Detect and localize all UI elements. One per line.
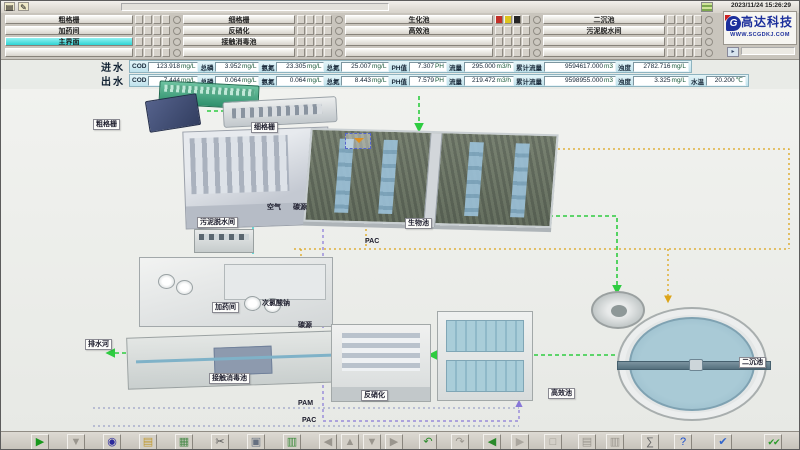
indicator-cell (513, 48, 521, 57)
status-lamp (173, 49, 181, 57)
undo-icon[interactable]: ↶ (419, 434, 437, 450)
menu-button-blank[interactable] (543, 48, 665, 57)
menu-button-生化池[interactable]: 生化池 (345, 15, 493, 24)
field-label: 氨氮 (261, 62, 274, 72)
indicator-cell (667, 37, 675, 46)
alarm-black-button[interactable] (513, 15, 521, 24)
label-pac-a: PAC (365, 237, 379, 246)
indicator-cell (306, 26, 314, 35)
high-efficiency-tank (437, 311, 533, 401)
label-carbon-source-b: 碳源 (298, 321, 312, 330)
higheff-pool (446, 320, 524, 352)
field-unit: mg/L (242, 63, 256, 71)
field-value: 123.918mg/L (148, 62, 198, 72)
status-lamp (533, 16, 541, 24)
field-label: 总氮 (326, 62, 339, 72)
redo-icon[interactable]: ↷ (451, 434, 469, 450)
cascade-icon[interactable]: □ (544, 434, 562, 450)
field-unit: ℃ (736, 77, 743, 85)
label-contact-tank: 接触消毒池 (209, 373, 250, 384)
nav-up-icon[interactable]: ▲ (341, 434, 359, 450)
biological-tank (303, 128, 558, 228)
indicator-cell (144, 48, 152, 57)
field-value: 9594617.000m3 (544, 62, 616, 72)
bio-channel (510, 143, 530, 217)
menu-column: 细格栅反硝化接触消毒池 (183, 15, 295, 57)
field-label: 浊度 (618, 62, 631, 72)
indicator-row (135, 26, 181, 35)
field-unit: mg/L (672, 77, 686, 85)
indicator-row (297, 37, 343, 46)
indicator-row (667, 15, 713, 24)
water-quality-row: 进水COD123.918mg/L总磷3.952mg/L氨氮23.305mg/L总… (101, 60, 799, 73)
field-value: 7.307PH (409, 62, 447, 72)
tile-h-icon[interactable]: ▤ (578, 434, 596, 450)
indicator-cell (135, 15, 143, 24)
indicator-cell (144, 37, 152, 46)
bio-channel (378, 140, 398, 214)
status-lamp (173, 38, 181, 46)
indicator-cell (306, 15, 314, 24)
indicator-cell (522, 48, 530, 57)
status-lamp (335, 38, 343, 46)
field-unit: m3/h (497, 63, 511, 71)
confirm-icon[interactable]: ✔✔ (764, 434, 782, 450)
field-unit: mg/L (307, 77, 321, 85)
status-lamp (705, 38, 713, 46)
field-unit: mg/L (372, 63, 386, 71)
field-label: PH值 (391, 62, 407, 72)
field-label: 氨氮 (261, 76, 274, 86)
menu-button-粗格栅[interactable]: 粗格栅 (5, 15, 133, 24)
label-pam: PAM (298, 399, 313, 408)
indicator-cell (676, 37, 684, 46)
label-high-efficiency: 高效池 (548, 388, 575, 399)
indicator-row (495, 48, 541, 57)
field-unit: mg/L (307, 63, 321, 71)
indicator-cell (306, 48, 314, 57)
indicator-row (297, 26, 343, 35)
scada-window: ▤✎ 粗格栅加药间主界面细格栅反硝化接触消毒池生化池高效池二沉池污泥脱水间 20… (0, 0, 800, 450)
label-fine-screen: 细格栅 (251, 122, 278, 133)
draw-icon[interactable]: ✎ (18, 2, 29, 11)
indicator-cell (162, 48, 170, 57)
image-icon[interactable]: ▦ (175, 434, 193, 450)
indicator-cell (315, 26, 323, 35)
menu-button-加药间[interactable]: 加药间 (5, 26, 133, 35)
field-unit: m3 (604, 77, 613, 85)
bio-center-channel (423, 133, 442, 227)
dosing-tank (244, 296, 261, 311)
indicator-cell (324, 26, 332, 35)
title-field[interactable] (121, 3, 389, 11)
nav-down-icon[interactable]: ▼ (363, 434, 381, 450)
indicator-cell (297, 48, 305, 57)
menu-column: 粗格栅加药间主界面 (5, 15, 133, 57)
indicator-cell (676, 48, 684, 57)
status-lamp (705, 49, 713, 57)
bio-channel (334, 139, 354, 213)
indicator-cell (495, 26, 503, 35)
field-label: 水温 (691, 76, 704, 86)
label-air: 空气 (267, 203, 281, 212)
alarm-status-icon[interactable] (701, 2, 713, 12)
field-value: 9598955.000m3 (544, 76, 616, 86)
paste-icon[interactable]: ▥ (283, 434, 301, 450)
indicator-cell (685, 48, 693, 57)
menu-button-高效池[interactable]: 高效池 (345, 26, 493, 35)
audio-check-icon[interactable]: ✔ (714, 434, 732, 450)
field-value: 3.952mg/L (215, 62, 259, 72)
indicator-cell (504, 37, 512, 46)
menu-bar: 粗格栅加药间主界面细格栅反硝化接触消毒池生化池高效池二沉池污泥脱水间 (1, 13, 800, 60)
indicator-cell (135, 37, 143, 46)
indicator-cell (667, 26, 675, 35)
indicator-cell (522, 37, 530, 46)
indicator-row (495, 37, 541, 46)
field-value: 2782.716mg/L (633, 62, 689, 72)
note-icon[interactable]: ▤ (4, 2, 15, 11)
menu-button-blank[interactable] (543, 37, 665, 46)
field-value: 0.064mg/L (276, 76, 324, 86)
influent-label: 进水 (101, 59, 129, 74)
indicator-row (135, 37, 181, 46)
menu-button-污泥脱水间[interactable]: 污泥脱水间 (543, 26, 665, 35)
label-secondary-clarifier: 二沉池 (739, 357, 766, 368)
indicator-cell (513, 26, 521, 35)
logo-website: WWW.SCGDKJ.COM (724, 32, 796, 38)
alarm-yellow-button[interactable] (504, 15, 512, 24)
logo-company-name: 高达科技 (738, 12, 796, 32)
field-label: 累计流量 (516, 62, 542, 72)
sum-icon[interactable]: ∑ (641, 434, 659, 450)
menu-column: 二沉池污泥脱水间 (543, 15, 665, 57)
field-value: 295.000m3/h (464, 62, 514, 72)
logo-mark-icon: G (726, 16, 741, 31)
dosing-room-building (139, 257, 333, 327)
company-logo: G 高达科技 WWW.SCGDKJ.COM (723, 11, 797, 45)
forward-icon[interactable]: ▶ (511, 434, 529, 450)
indicator-cell (685, 37, 693, 46)
distribution-well (591, 291, 645, 329)
label-pac-b: PAC (302, 416, 316, 425)
indicator-cell (306, 37, 314, 46)
menu-button-细格栅[interactable]: 细格栅 (183, 15, 295, 24)
status-lamp (335, 27, 343, 35)
indicator-cell (495, 48, 503, 57)
indicator-cell (153, 48, 161, 57)
dosing-tank (158, 274, 175, 289)
indicator-grid (135, 15, 181, 57)
indicator-grid (667, 15, 713, 57)
indicator-cell (676, 15, 684, 24)
indicator-cell (522, 26, 530, 35)
indicator-row (495, 26, 541, 35)
field-value: 25.007mg/L (341, 62, 389, 72)
label-dosing-room: 加药间 (212, 302, 239, 313)
indicator-cell (676, 26, 684, 35)
indicator-cell (324, 37, 332, 46)
menu-button-接触消毒池[interactable]: 接触消毒池 (183, 37, 295, 46)
field-value: 23.305mg/L (276, 62, 324, 72)
indicator-row (297, 15, 343, 24)
indicator-cell (153, 37, 161, 46)
label-coarse-screen: 粗格栅 (93, 119, 120, 130)
indicator-cell (162, 37, 170, 46)
label-outfall-river: 排水河 (85, 339, 112, 350)
indicator-row (135, 15, 181, 24)
indicator-cell (153, 15, 161, 24)
field-unit: mg/L (372, 77, 386, 85)
dosing-tank (176, 280, 193, 295)
paint-icon[interactable]: ◉ (103, 434, 121, 450)
indicator-cell (685, 26, 693, 35)
indicator-row (667, 48, 713, 57)
sludge-tank (194, 229, 254, 253)
copy-icon[interactable]: ▣ (247, 434, 265, 450)
indicator-cell (135, 26, 143, 35)
indicator-cell (315, 48, 323, 57)
field-label: COD (132, 63, 146, 70)
field-value: 7.579PH (409, 76, 447, 86)
label-denitrification: 反硝化 (361, 390, 388, 401)
bio-channel (464, 142, 484, 216)
status-lamp (335, 49, 343, 57)
indicator-cell (153, 26, 161, 35)
indicator-cell (297, 15, 305, 24)
datetime-label: 2023/11/24 15:26:29 (723, 2, 799, 9)
indicator-cell (667, 48, 675, 57)
indicator-cell (667, 15, 675, 24)
status-lamp (533, 49, 541, 57)
field-label: 总磷 (200, 62, 213, 72)
indicator-cell (694, 48, 702, 57)
indicator-grid (495, 15, 541, 57)
effluent-label: 出水 (101, 73, 129, 88)
field-unit: m3/h (497, 77, 511, 85)
run-icon[interactable]: ▶ (31, 434, 49, 450)
menu-button-blank[interactable] (345, 37, 493, 46)
field-label: 流量 (449, 62, 462, 72)
nav-right-icon[interactable]: ▶ (385, 434, 403, 450)
indicator-cell (162, 15, 170, 24)
indicator-cell (324, 48, 332, 57)
menu-column: 生化池高效池 (345, 15, 493, 57)
field-label: PH值 (391, 76, 407, 86)
indicator-cell (144, 15, 152, 24)
help-icon[interactable]: ? (674, 434, 692, 450)
menu-button-主界面[interactable]: 主界面 (5, 37, 133, 46)
field-label: 流量 (449, 76, 462, 86)
status-lamp (335, 16, 343, 24)
menu-button-反硝化[interactable]: 反硝化 (183, 26, 295, 35)
field-label: 浊度 (618, 76, 631, 86)
field-unit: PH (435, 63, 444, 71)
indicator-row (495, 15, 541, 24)
bottom-toolbar: ▶▼◉▤▦✂▣▥◀▲▼▶↶↷◀▶□▤▥∑?✔✔✔ (1, 431, 800, 450)
higheff-pool (446, 360, 524, 392)
status-lamp (705, 27, 713, 35)
indicator-row (667, 26, 713, 35)
status-lamp (533, 27, 541, 35)
field-label: COD (132, 77, 146, 84)
status-lamp (173, 16, 181, 24)
field-value: 20.200℃ (706, 76, 746, 86)
indicator-cell (495, 37, 503, 46)
indicator-grid (297, 15, 343, 57)
indicator-cell (297, 37, 305, 46)
label-bio-tank: 生物池 (405, 218, 432, 229)
indicator-cell (315, 37, 323, 46)
menu-button-二沉池[interactable]: 二沉池 (543, 15, 665, 24)
clarifier-hub (689, 359, 703, 371)
indicator-cell (522, 15, 530, 24)
field-unit: mg/L (181, 63, 195, 71)
indicator-cell (504, 26, 512, 35)
field-value: 219.472m3/h (464, 76, 514, 86)
command-icon[interactable]: ▸ (727, 47, 739, 57)
label-sludge-dewatering: 污泥脱水间 (197, 217, 238, 228)
field-value: 3.325mg/L (633, 76, 689, 86)
indicator-cell (685, 15, 693, 24)
field-value: 8.443mg/L (341, 76, 389, 86)
command-field[interactable] (741, 47, 795, 55)
indicator-cell (315, 15, 323, 24)
label-sodium-hypochlorite: 次氯酸钠 (262, 299, 290, 308)
alarm-red-button[interactable] (495, 15, 503, 24)
tile-v-icon[interactable]: ▥ (606, 434, 624, 450)
field-unit: mg/L (672, 63, 686, 71)
status-lamp (173, 27, 181, 35)
indicator-row (667, 37, 713, 46)
field-label: 累计流量 (516, 76, 542, 86)
indicator-cell (162, 26, 170, 35)
open-icon[interactable]: ▤ (139, 434, 157, 450)
indicator-cell (694, 26, 702, 35)
field-unit: m3 (604, 63, 613, 71)
indicator-cell (135, 48, 143, 57)
menu-button-blank[interactable] (183, 48, 295, 57)
bio-inlet-gate (345, 133, 371, 149)
indicator-cell (504, 48, 512, 57)
menu-button-blank[interactable] (5, 48, 133, 57)
indicator-cell (144, 26, 152, 35)
filter-icon[interactable]: ▼ (67, 434, 85, 450)
field-label: 总氮 (326, 76, 339, 86)
measurement-strip: COD123.918mg/L总磷3.952mg/L氨氮23.305mg/L总氮2… (129, 60, 692, 73)
indicator-cell (694, 15, 702, 24)
nav-left-icon[interactable]: ◀ (319, 434, 337, 450)
indicator-cell (324, 15, 332, 24)
menu-button-blank[interactable] (345, 48, 493, 57)
field-unit: PH (435, 77, 444, 85)
back-icon[interactable]: ◀ (483, 434, 501, 450)
indicator-row (135, 48, 181, 57)
field-unit: mg/L (242, 77, 256, 85)
status-lamp (705, 16, 713, 24)
cut-icon[interactable]: ✂ (211, 434, 229, 450)
status-lamp (533, 38, 541, 46)
process-diagram: 粗格栅细格栅污泥脱水间生物池空气碳源PAC加药间次氯酸钠碳源接触消毒池反硝化高效… (1, 89, 800, 431)
indicator-cell (297, 26, 305, 35)
indicator-cell (513, 37, 521, 46)
label-carbon-source-a: 碳源 (293, 203, 307, 212)
indicator-row (297, 48, 343, 57)
indicator-cell (694, 37, 702, 46)
